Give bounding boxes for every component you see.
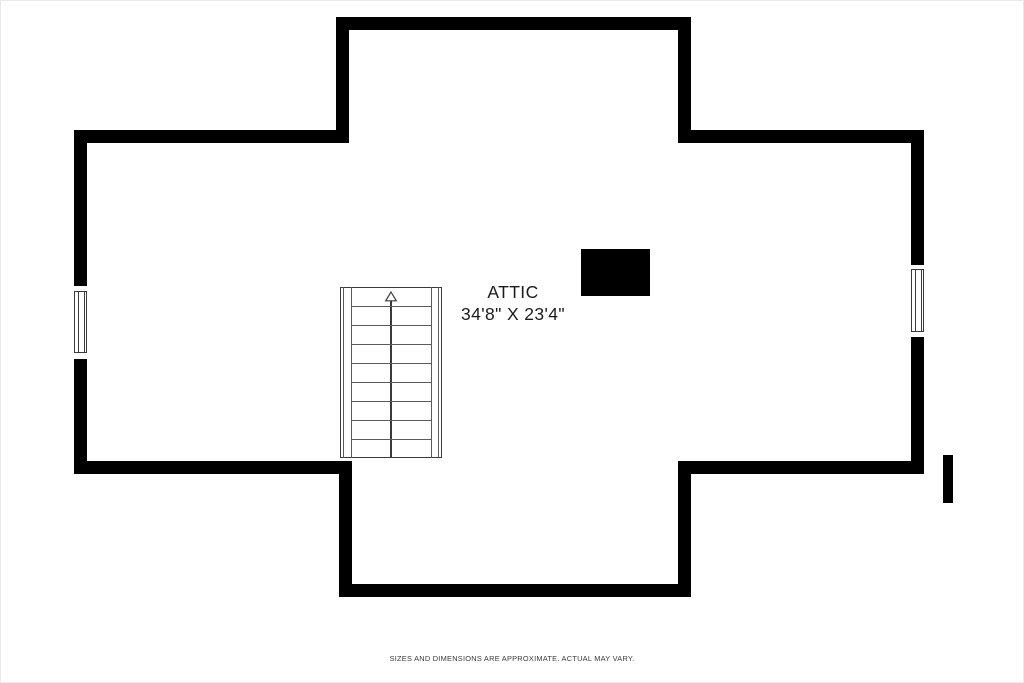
wall-main-bottom-left [74,461,352,474]
right-window-mullion [915,270,922,331]
wall-main-bottom-right [678,461,924,474]
wall-left-lower [74,359,87,474]
wall-bottom-bump-right [678,461,691,597]
right-window-frame [911,269,924,332]
right-window [911,265,924,337]
wall-left-upper [74,130,87,286]
wall-stub-right [943,455,953,503]
wall-main-top-right [678,130,924,143]
stair-tread [351,401,432,402]
stair-left-rail [351,287,352,458]
wall-top-bump-right [678,17,691,143]
wall-top-bump-left [336,17,349,143]
floor-plan-canvas: ATTIC 34'8" X 23'4" SIZES AND DIMENSIONS… [0,0,1024,683]
wall-bottom-bump-bottom [339,584,691,597]
room-label: ATTIC 34'8" X 23'4" [363,281,663,325]
room-name: ATTIC [363,281,663,303]
stair-tread [351,363,432,364]
stair-tread [351,439,432,440]
disclaimer-text: SIZES AND DIMENSIONS ARE APPROXIMATE. AC… [1,654,1023,664]
wall-main-top-left [74,130,349,143]
stair-tread [351,382,432,383]
left-window [74,286,87,359]
wall-bottom-bump-left [339,461,352,597]
wall-right-upper [911,130,924,265]
stair-tread [351,420,432,421]
wall-right-lower [911,337,924,474]
stair-tread [351,325,432,326]
room-dimensions: 34'8" X 23'4" [363,303,663,325]
left-window-mullion [78,292,85,352]
left-window-frame [74,291,87,353]
stair-left-outer-stringer [343,287,344,458]
wall-top-bump-top [336,17,691,30]
stair-tread [351,344,432,345]
